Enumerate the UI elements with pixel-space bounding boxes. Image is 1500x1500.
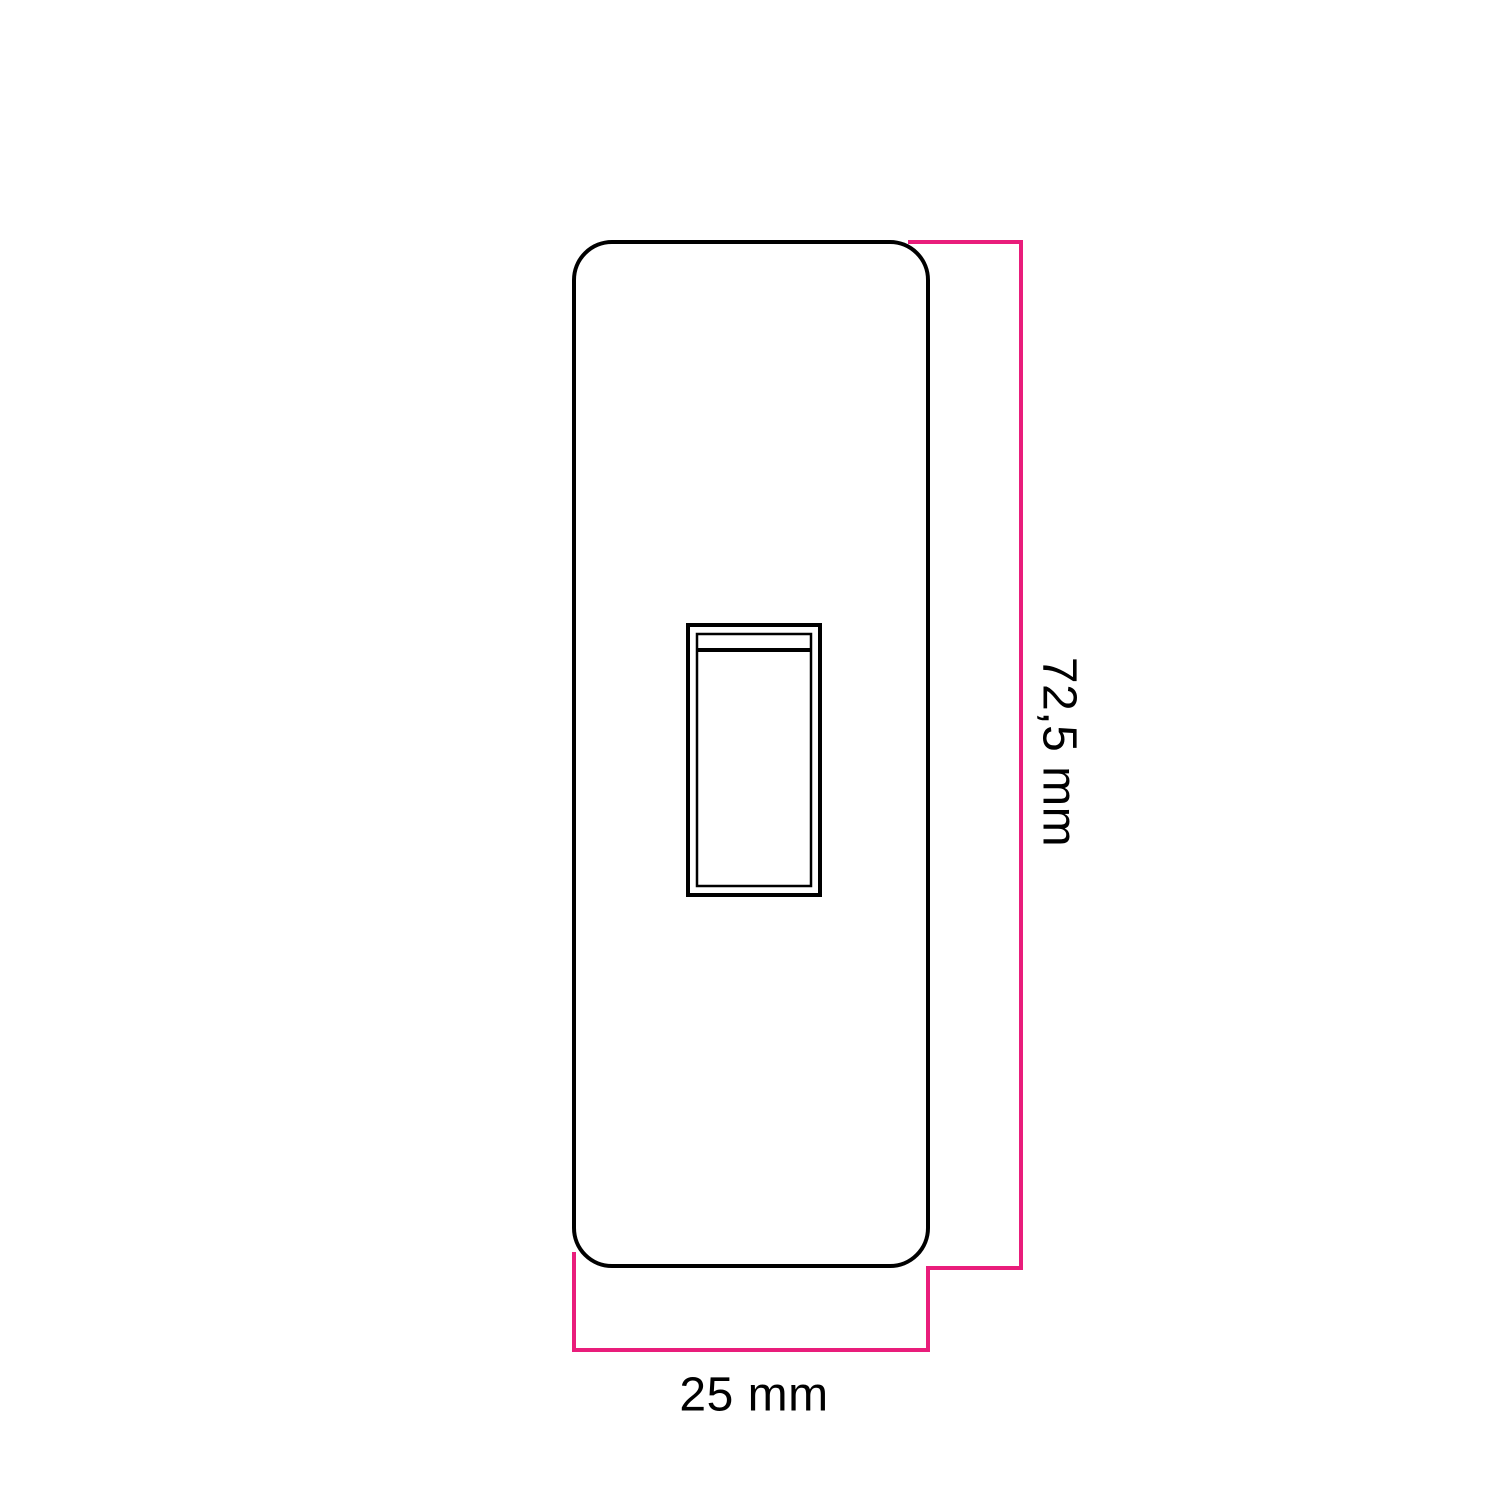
rocker-toggle-outer-outline xyxy=(688,625,820,895)
rocker-toggle-inner-outline xyxy=(697,634,811,886)
technical-dimension-drawing: 72,5 mm 25 mm xyxy=(0,0,1500,1500)
switch-outline-group xyxy=(574,242,928,1266)
dimension-lines-group xyxy=(572,240,1023,1352)
height-dimension-label: 72,5 mm xyxy=(1032,657,1085,847)
drawing-canvas xyxy=(0,0,1500,1500)
switch-plate-outline xyxy=(574,242,928,1266)
width-dimension-label: 25 mm xyxy=(679,1370,828,1423)
